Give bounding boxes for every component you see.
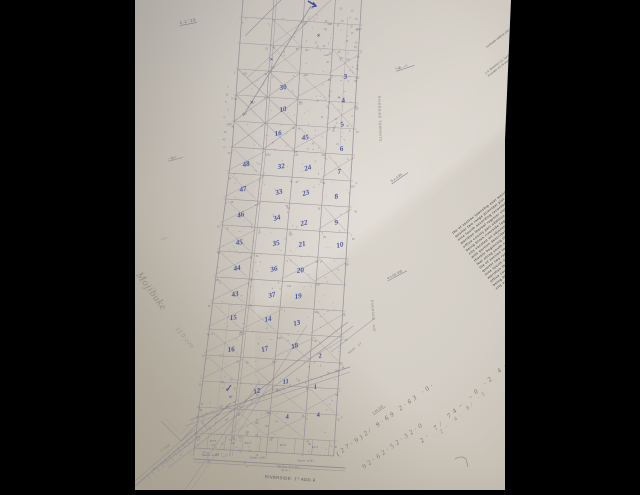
- svg-text:100: 100: [245, 431, 250, 434]
- svg-text:100: 100: [238, 436, 243, 439]
- svg-text:100: 100: [243, 73, 248, 76]
- svg-text:21: 21: [297, 240, 307, 250]
- svg-text:Section · at 38·1: Section · at 38·1: [250, 457, 268, 460]
- svg-text:45: 45: [300, 133, 309, 142]
- svg-text:100: 100: [287, 285, 292, 288]
- svg-text:11: 11: [282, 378, 289, 386]
- svg-text:20: 20: [295, 266, 305, 275]
- svg-text:B·K 6: B·K 6: [280, 444, 287, 447]
- svg-text:100: 100: [265, 425, 270, 428]
- svg-text:45: 45: [234, 238, 244, 247]
- svg-text:100: 100: [239, 333, 244, 336]
- svg-text:B·K 3: B·K 3: [245, 442, 252, 445]
- svg-text:100: 100: [316, 283, 321, 286]
- svg-text:100: 100: [219, 406, 224, 409]
- svg-text:Section · at 38·1: Section · at 38·1: [298, 459, 316, 462]
- svg-text:100: 100: [350, 186, 355, 189]
- svg-text:100: 100: [270, 66, 275, 69]
- svg-text:15: 15: [229, 313, 237, 322]
- svg-text:32: 32: [276, 162, 286, 171]
- svg-text:40·W·T·: 40·W·T·: [281, 468, 292, 473]
- svg-text:100: 100: [304, 74, 309, 77]
- svg-text:100: 100: [346, 58, 351, 61]
- svg-text:Section · at 38·1: Section · at 38·1: [202, 454, 220, 457]
- svg-text:B·K 5: B·K 5: [312, 446, 319, 449]
- svg-text:B·K 7: B·K 7: [210, 440, 217, 443]
